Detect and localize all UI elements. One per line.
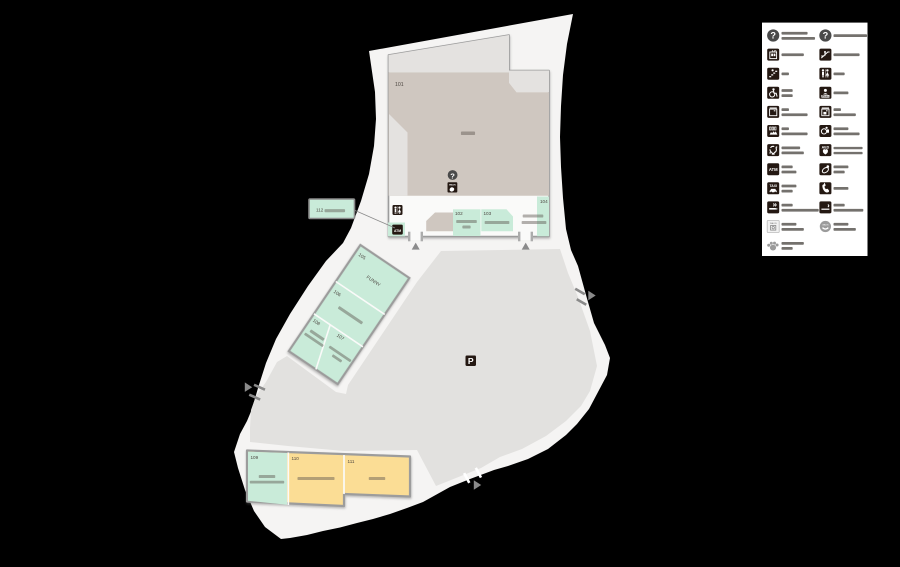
svg-text:112: 112 [316, 208, 324, 213]
svg-text:ATM: ATM [769, 167, 778, 172]
svg-text:?: ? [450, 171, 455, 180]
svg-text:109: 109 [251, 455, 259, 460]
svg-text:TAXI: TAXI [769, 184, 777, 188]
svg-text:AED: AED [822, 146, 830, 150]
svg-text:WAON: WAON [770, 222, 777, 225]
svg-text:111: 111 [348, 459, 355, 464]
svg-text:ATM: ATM [394, 229, 401, 233]
svg-text:WAON: WAON [822, 223, 829, 226]
svg-text:WAON: WAON [449, 183, 456, 186]
svg-text:110: 110 [292, 456, 300, 461]
svg-text:P: P [468, 356, 474, 366]
svg-text:Photo: Photo [822, 95, 829, 98]
svg-text:104: 104 [540, 199, 548, 204]
svg-text:?: ? [823, 31, 829, 41]
svg-text:103: 103 [484, 211, 492, 216]
svg-text:?: ? [770, 31, 776, 41]
svg-text:101: 101 [395, 82, 404, 88]
svg-text:102: 102 [455, 211, 463, 216]
